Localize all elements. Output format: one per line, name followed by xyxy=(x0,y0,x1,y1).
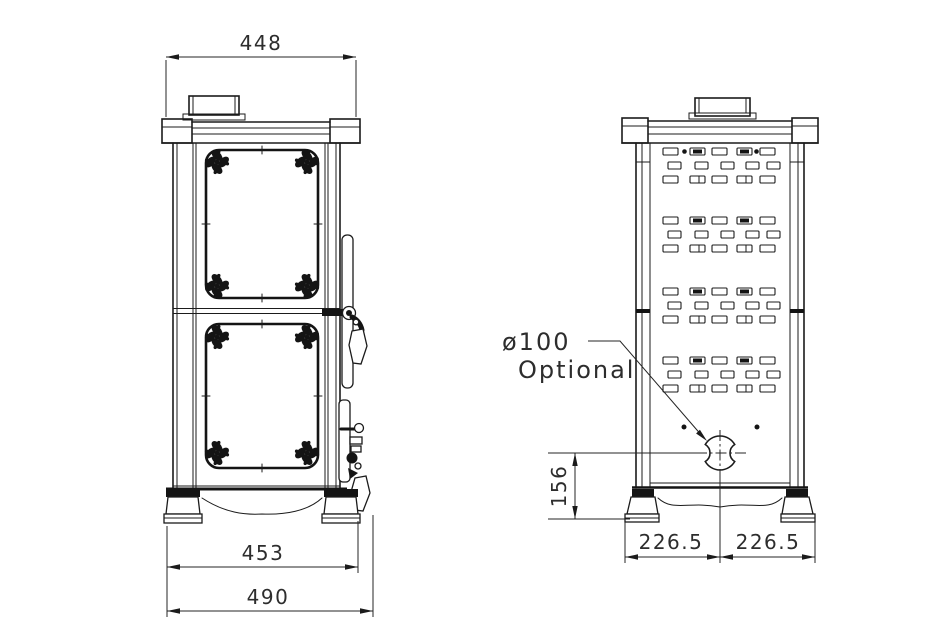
dim-label-448: 448 xyxy=(240,31,283,55)
screw-dot xyxy=(682,425,687,430)
vent-slot-row xyxy=(663,245,775,252)
dim-label-226-5-right: 226.5 xyxy=(736,530,801,554)
upper-door-panel xyxy=(202,146,322,302)
outlet-diameter-label: ø100 xyxy=(502,328,571,356)
dim-label-226-5-left: 226.5 xyxy=(639,530,704,554)
top-plate-rear xyxy=(622,118,818,143)
body-front xyxy=(166,143,347,489)
stove-dimension-drawing: 448 453 490 xyxy=(0,0,925,632)
base-front xyxy=(164,489,360,523)
rear-view: ø100 Optional 156 xyxy=(502,98,818,563)
screw-dot xyxy=(682,149,687,154)
vent-slot-row xyxy=(668,302,780,309)
vent-slot-row xyxy=(663,357,775,364)
technical-drawing-sheet: 448 453 490 xyxy=(0,0,925,632)
vent-slot-row xyxy=(668,371,780,378)
vent-slot-row xyxy=(663,385,775,392)
upper-door-handle xyxy=(322,235,367,388)
wooden-grip xyxy=(349,329,367,364)
dim-label-490: 490 xyxy=(247,585,290,609)
outlet-note-label: Optional xyxy=(518,356,635,384)
vent-slot-row xyxy=(668,231,780,238)
vent-slots xyxy=(663,148,780,392)
pillar-joint xyxy=(636,309,650,313)
flue-collar-front xyxy=(183,96,245,120)
front-view: 448 453 490 xyxy=(162,31,373,617)
dim-overall-width: 490 xyxy=(167,515,373,617)
pillar-joint xyxy=(790,309,804,313)
dim-outlet-height: 156 xyxy=(547,453,696,519)
lower-door-panel xyxy=(202,320,322,472)
skirt-arch xyxy=(202,498,322,514)
vent-slot-row xyxy=(663,176,775,183)
vent-slot-row xyxy=(663,217,775,224)
dim-label-453: 453 xyxy=(242,541,285,565)
screw-dot xyxy=(755,425,760,430)
dim-top-width: 448 xyxy=(166,31,356,117)
screw-dot xyxy=(754,149,759,154)
top-plate-front xyxy=(162,119,360,143)
vent-slot-row xyxy=(663,316,775,323)
flue-knockout xyxy=(682,425,760,479)
vent-slot-row xyxy=(668,162,780,169)
vent-slot-row xyxy=(663,288,775,295)
dim-label-156: 156 xyxy=(547,465,571,508)
flue-collar-rear xyxy=(689,98,756,119)
